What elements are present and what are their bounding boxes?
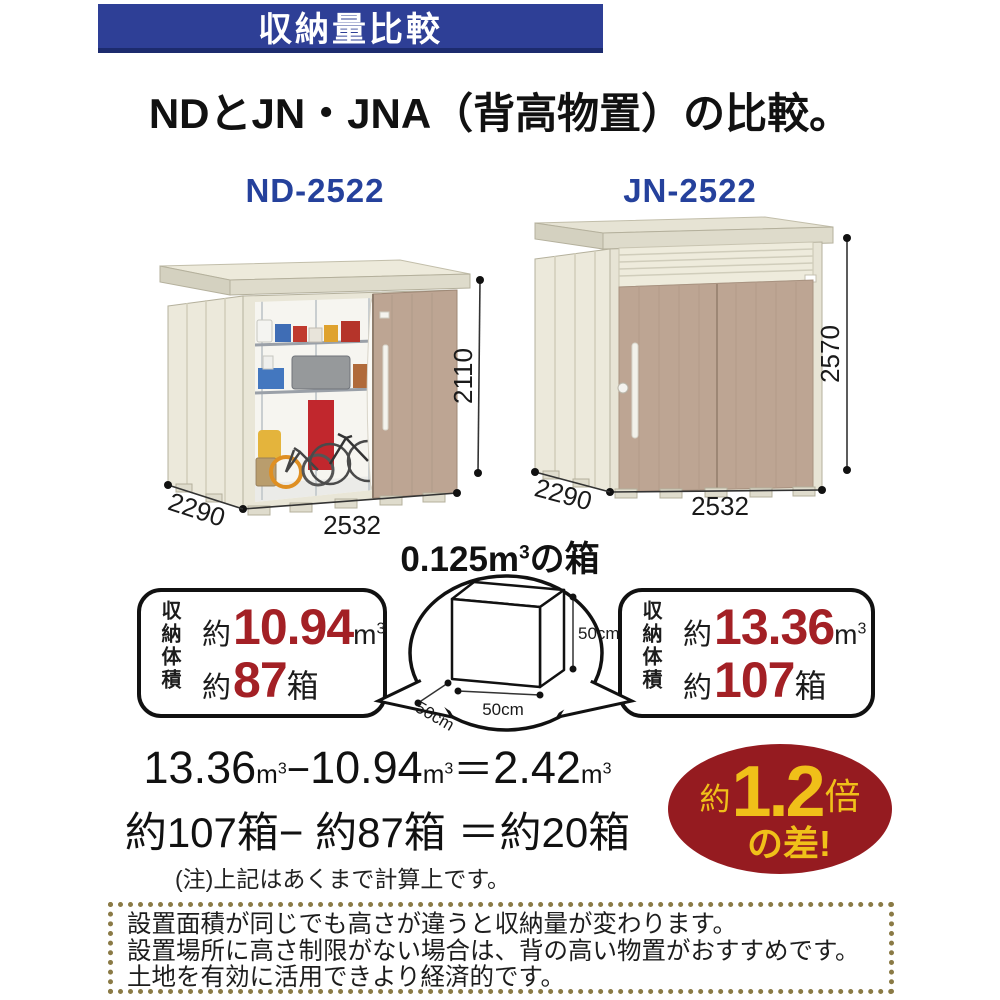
height-dimension-nd: 2110 <box>448 348 478 404</box>
shed-illustration-nd: 2110 2532 2290 <box>140 250 490 540</box>
cube-height-label: 50cm <box>578 624 620 643</box>
calculation-block: 13.36m3−10.94m3＝2.42m3 約107箱− 約87箱 ＝約20箱 <box>95 744 660 860</box>
count-row: 約 107 箱 <box>683 655 866 705</box>
shutter-band <box>619 242 816 287</box>
banner: 収納量比較 <box>98 4 603 53</box>
height-dimension-jn: 2570 <box>815 325 845 383</box>
storage-cube-diagram: 50cm 50cm 50cm <box>370 565 640 743</box>
cube-icon <box>452 582 564 687</box>
width-dimension-jn: 2532 <box>691 491 749 520</box>
page-title: NDとJN・JNA（背高物置）の比較。 <box>0 80 1000 141</box>
side-wall <box>535 249 610 492</box>
volume-value: 13.36 <box>714 602 834 652</box>
box-count-value: 87 <box>233 655 287 705</box>
difference-value: 1.2 <box>731 756 822 828</box>
capacity-box-nd: 収納体積 約 10.94 m3 約 87 箱 <box>137 588 387 718</box>
capacity-label: 収納体積 <box>636 600 665 706</box>
shed-label-jn: JN-2522 <box>515 172 865 210</box>
calculation-box-equation: 約107箱− 約87箱 ＝約20箱 <box>95 799 660 860</box>
volume-row: 約 10.94 m3 <box>202 602 385 652</box>
cube-width-label: 50cm <box>482 700 524 719</box>
page: 収納量比較 NDとJN・JNA（背高物置）の比較。 ND-2522 JN-252… <box>0 0 1000 1000</box>
volume-row: 約 13.36 m3 <box>683 602 866 652</box>
box-count-value: 107 <box>714 655 794 705</box>
calculation-volume-equation: 13.36m3−10.94m3＝2.42m3 <box>95 744 660 791</box>
banner-title: 収納量比較 <box>258 2 443 51</box>
capacity-label: 収納体積 <box>155 600 184 706</box>
footer-line: 設置面積が同じでも高さが違うと収納量が変わります。 <box>127 912 875 939</box>
capacity-box-jn: 収納体積 約 13.36 m3 約 107 箱 <box>618 588 875 718</box>
footer-line: 土地を有効に活用できより経済的です。 <box>127 965 875 992</box>
calculation-note: (注)上記はあくまで計算上です。 <box>175 860 510 894</box>
door-handle <box>632 343 638 438</box>
shed-illustration-jn: 2570 2532 2290 <box>515 215 865 520</box>
difference-badge: 約 1.2 倍 の差! <box>668 744 892 874</box>
volume-value: 10.94 <box>233 602 353 652</box>
footer-line: 設置場所に高さ制限がない場合は、背の高い物置がおすすめです。 <box>127 939 875 966</box>
door-lock <box>618 383 628 393</box>
door-handle <box>383 345 388 430</box>
shed-label-nd: ND-2522 <box>140 172 490 210</box>
count-row: 約 87 箱 <box>202 655 385 705</box>
shed-interior <box>255 296 388 504</box>
footer-note-box: 設置面積が同じでも高さが違うと収納量が変わります。 設置場所に高さ制限がない場合… <box>108 902 894 994</box>
